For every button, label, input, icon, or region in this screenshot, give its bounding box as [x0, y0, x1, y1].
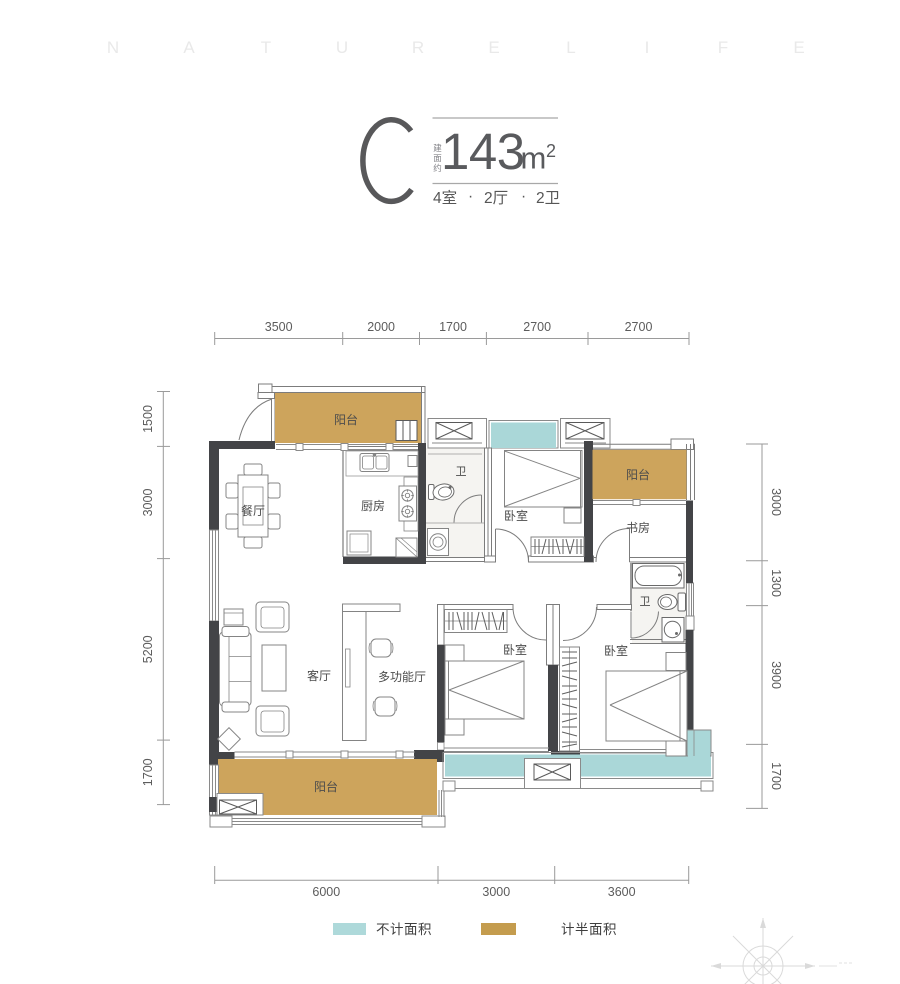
- svg-text:143: 143: [441, 123, 525, 180]
- svg-text:I: I: [645, 38, 650, 57]
- svg-text:3000: 3000: [769, 488, 783, 516]
- svg-text:·: ·: [468, 188, 473, 205]
- svg-text:N: N: [107, 38, 119, 57]
- svg-text:阳台: 阳台: [314, 779, 338, 794]
- svg-text:6000: 6000: [312, 885, 340, 899]
- svg-text:多功能厅: 多功能厅: [378, 670, 426, 684]
- svg-text:4室: 4室: [433, 189, 457, 207]
- svg-text:1700: 1700: [141, 758, 155, 786]
- svg-text:2: 2: [546, 141, 556, 161]
- svg-text:E: E: [793, 38, 804, 57]
- svg-text:餐厅: 餐厅: [241, 503, 265, 518]
- svg-text:书房: 书房: [626, 520, 650, 535]
- svg-text:阳台: 阳台: [334, 412, 358, 427]
- svg-text:2厅: 2厅: [484, 190, 508, 207]
- svg-text:T: T: [261, 38, 271, 57]
- svg-text:3000: 3000: [141, 489, 155, 517]
- svg-text:厨房: 厨房: [361, 498, 385, 513]
- svg-text:卫: 卫: [640, 596, 651, 608]
- svg-text:2卫: 2卫: [536, 190, 560, 207]
- svg-text:3000: 3000: [482, 885, 510, 899]
- svg-text:3500: 3500: [265, 320, 293, 334]
- svg-text:2000: 2000: [367, 320, 395, 334]
- svg-text:卧室: 卧室: [504, 508, 528, 523]
- svg-text:2700: 2700: [625, 320, 653, 334]
- svg-text:1700: 1700: [769, 762, 783, 790]
- svg-text:客厅: 客厅: [307, 668, 331, 683]
- svg-text:1300: 1300: [769, 569, 783, 597]
- svg-text:3600: 3600: [608, 885, 636, 899]
- svg-text:E: E: [488, 38, 499, 57]
- svg-text:A: A: [183, 38, 195, 57]
- svg-text:卧室: 卧室: [503, 642, 527, 657]
- svg-text:3900: 3900: [769, 661, 783, 689]
- svg-text:1500: 1500: [141, 405, 155, 433]
- svg-text:卧室: 卧室: [604, 643, 628, 658]
- svg-text:卫: 卫: [456, 466, 467, 478]
- svg-text:m: m: [521, 141, 547, 176]
- svg-text:5200: 5200: [141, 635, 155, 663]
- svg-text:1700: 1700: [439, 320, 467, 334]
- svg-text:·: ·: [521, 188, 526, 205]
- svg-text:L: L: [566, 38, 575, 57]
- svg-text:阳台: 阳台: [626, 467, 650, 482]
- svg-text:R: R: [412, 38, 424, 57]
- svg-text:F: F: [718, 38, 728, 57]
- svg-text:不计面积: 不计面积: [376, 922, 432, 937]
- svg-text:U: U: [336, 38, 348, 57]
- svg-text:2700: 2700: [523, 320, 551, 334]
- svg-text:计半面积: 计半面积: [561, 922, 617, 937]
